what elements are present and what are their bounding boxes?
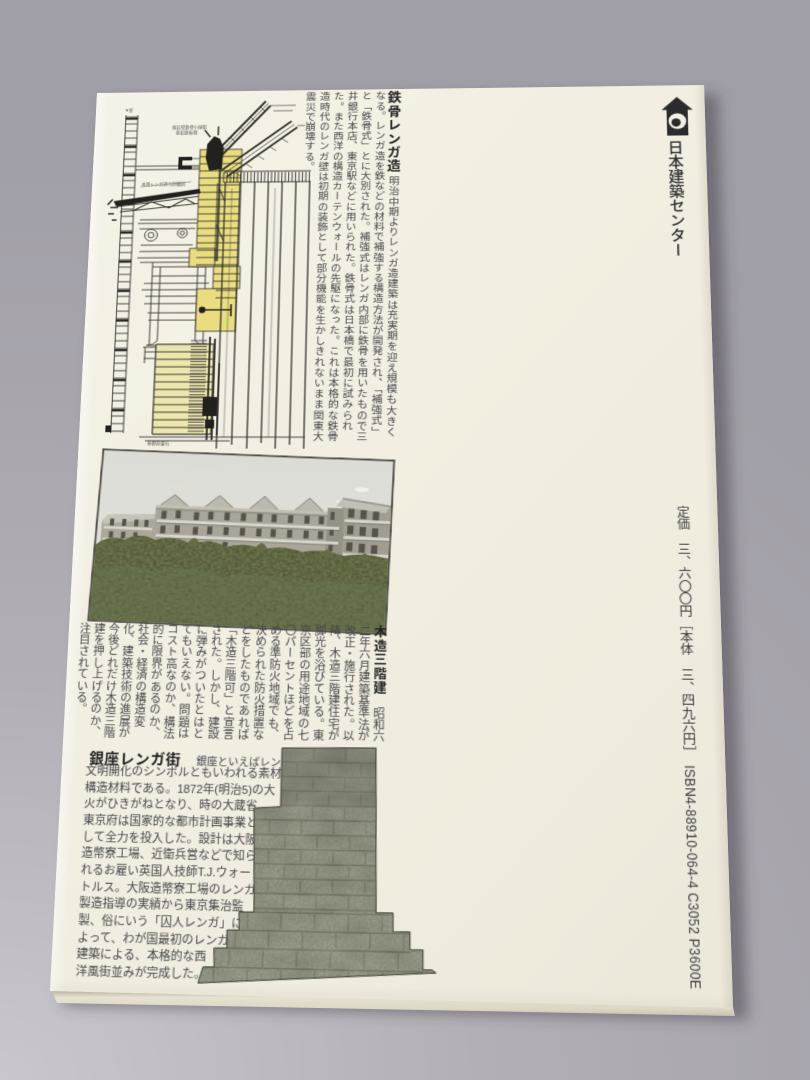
svg-text:亜鉛鉄板葺: 亜鉛鉄板葺 [176, 129, 198, 135]
svg-text:煉瓦壁鉄骨小屋組: 煉瓦壁鉄骨小屋組 [172, 124, 207, 130]
svg-text:基礎割栗石: 基礎割栗石 [147, 439, 170, 445]
svg-text:▼軒: ▼軒 [125, 108, 134, 113]
